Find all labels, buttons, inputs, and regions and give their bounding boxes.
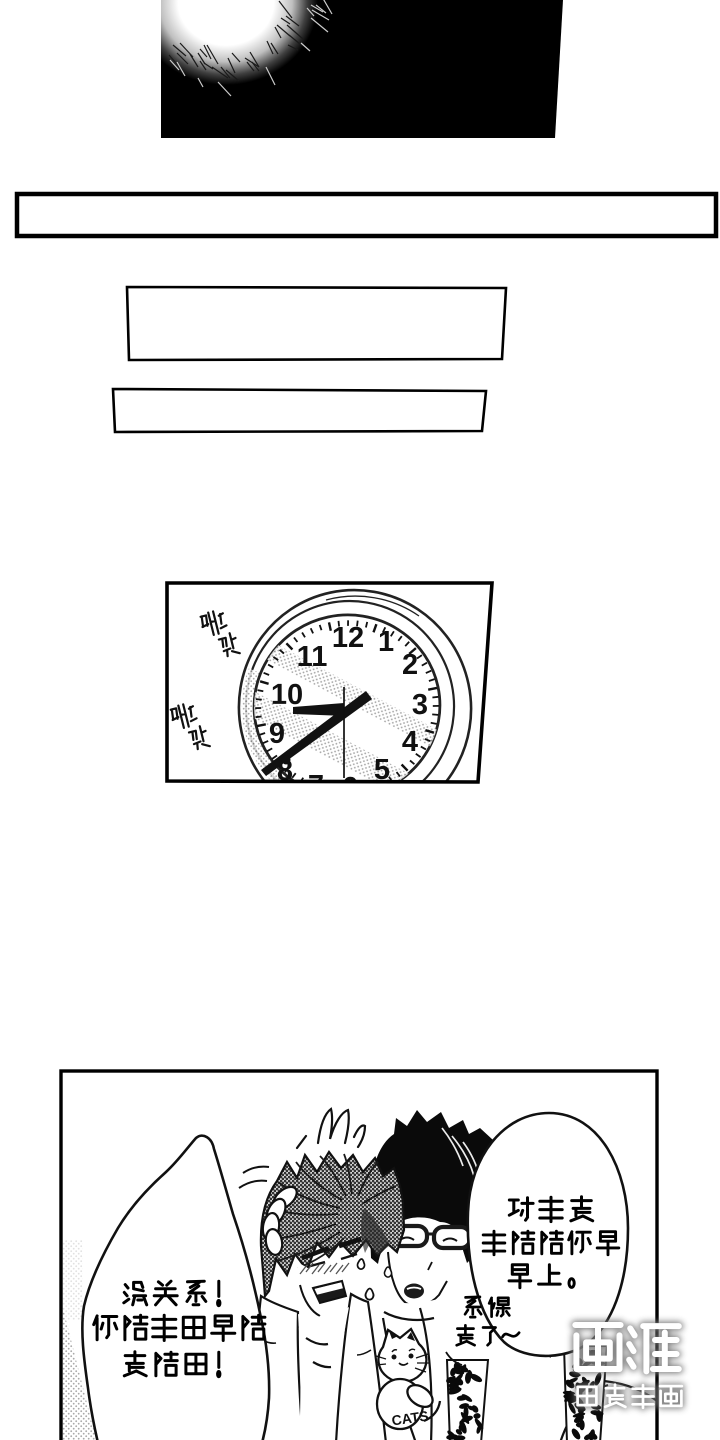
svg-text:4: 4 xyxy=(402,726,418,758)
svg-text:9: 9 xyxy=(269,718,285,750)
svg-text:10: 10 xyxy=(271,679,303,711)
svg-text:2: 2 xyxy=(402,649,418,681)
svg-text:3: 3 xyxy=(412,689,428,721)
svg-text:1: 1 xyxy=(378,626,394,658)
svg-text:11: 11 xyxy=(297,641,328,673)
svg-text:12: 12 xyxy=(332,622,364,654)
